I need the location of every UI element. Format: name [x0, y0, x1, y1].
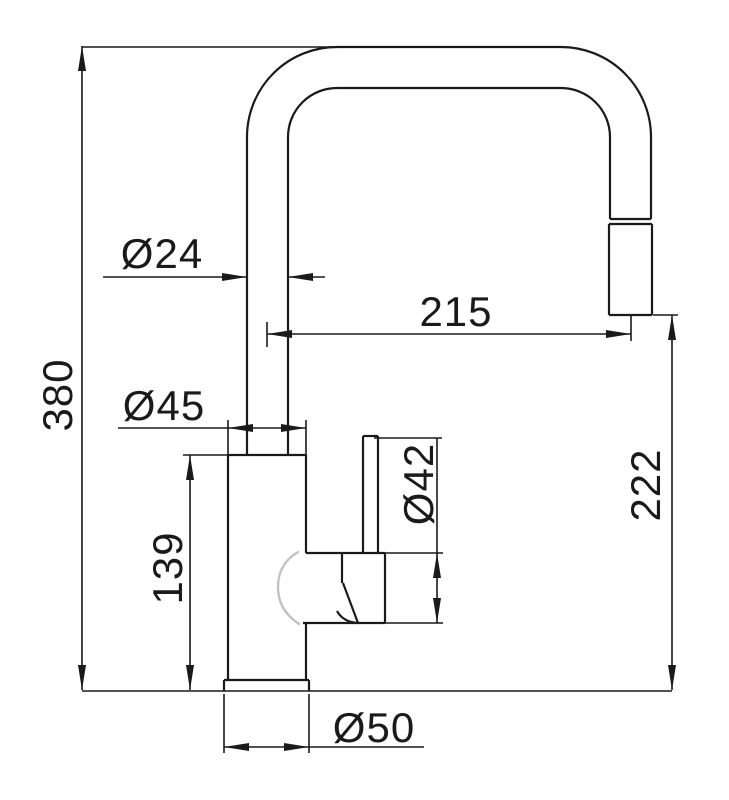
faucet-dimension-drawing: 380 Ø24 215 Ø45 Ø42 139 222 Ø50 [0, 0, 729, 800]
arrow-42-top [433, 553, 441, 578]
dim-label-body-height: 139 [144, 531, 191, 604]
dim-label-cartridge-diameter: Ø42 [395, 443, 442, 525]
arrow-45-right [281, 424, 306, 432]
arrow-215-left [267, 330, 292, 338]
arrow-42-bottom [433, 598, 441, 623]
dim-label-spout-reach: 215 [419, 288, 492, 335]
arrow-50-left [224, 743, 249, 751]
arrow-380-bottom [78, 665, 86, 690]
arrow-222-top [668, 315, 676, 340]
faucet-object-lines [224, 47, 652, 691]
spout-outer-edge [247, 47, 651, 456]
arrow-24-right [288, 273, 313, 281]
dim-label-body-diameter: Ø45 [123, 382, 205, 429]
dim-label-outlet-height: 222 [622, 448, 669, 521]
dim-label-base-diameter: Ø50 [333, 704, 415, 751]
arrow-45-left [228, 424, 253, 432]
spout-inner-edge [288, 88, 610, 456]
body-joint-bulge-tangent-edge [278, 552, 299, 624]
cartridge-tilt-edge [343, 583, 358, 623]
arrow-24-left [222, 273, 247, 281]
arrow-50-right [284, 743, 309, 751]
arrow-222-bottom [668, 665, 676, 690]
arrow-215-right [606, 330, 631, 338]
arrow-139-top [186, 455, 194, 480]
technical-drawing-canvas: 380 Ø24 215 Ø45 Ø42 139 222 Ø50 [0, 0, 729, 800]
dim-label-tube-diameter: Ø24 [121, 230, 203, 277]
dimension-labels: 380 Ø24 215 Ø45 Ø42 139 222 Ø50 [34, 230, 669, 751]
dim-label-total-height: 380 [34, 358, 81, 431]
arrow-139-bottom [186, 665, 194, 690]
arrow-380-top [78, 46, 86, 71]
